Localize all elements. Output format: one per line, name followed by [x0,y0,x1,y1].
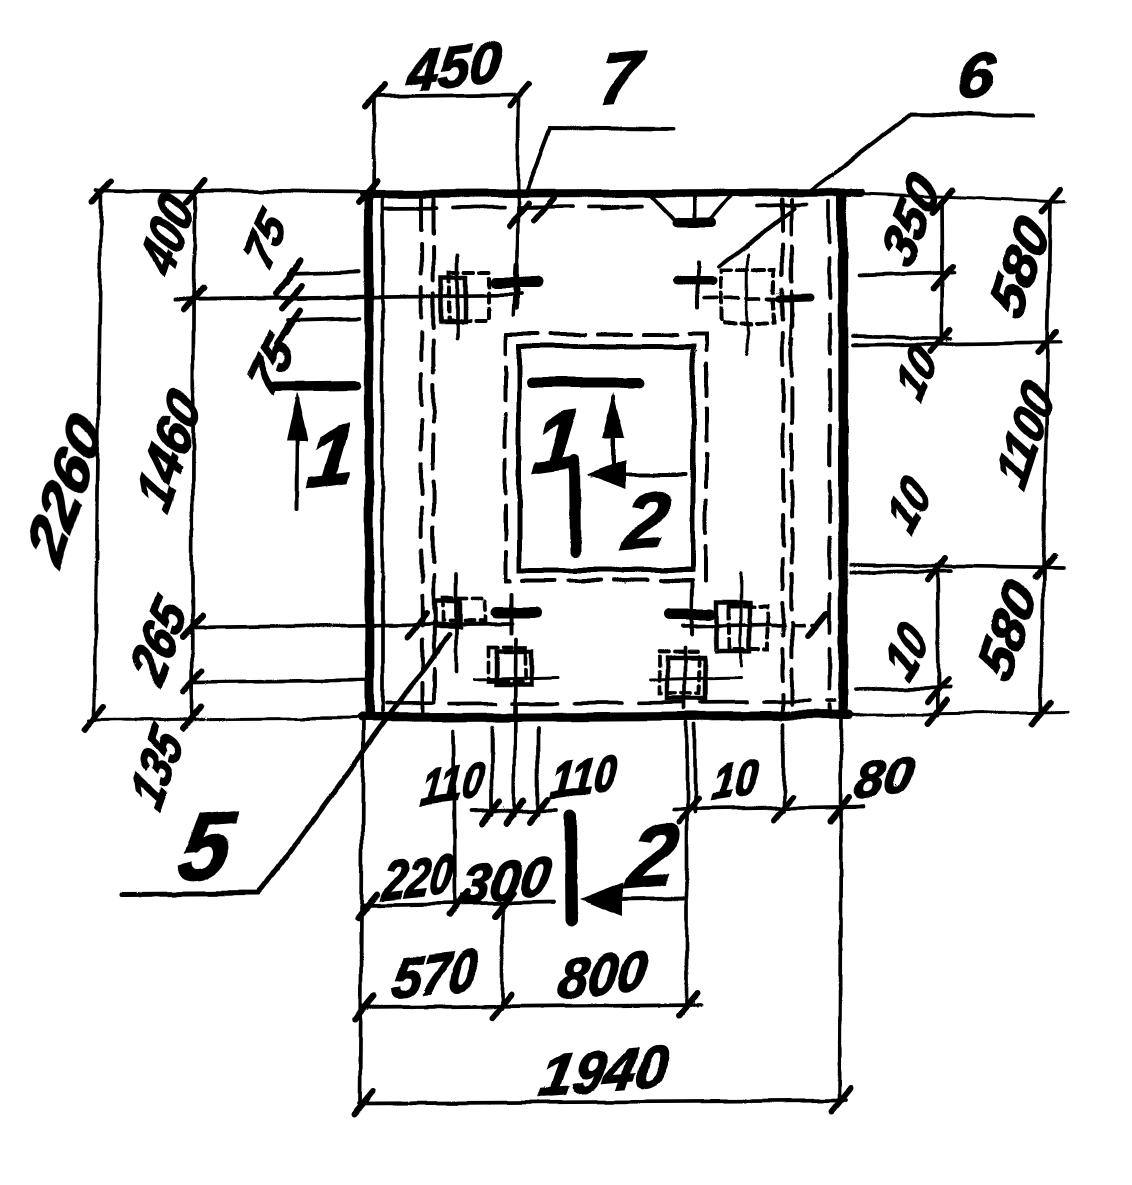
svg-text:1100: 1100 [985,372,1062,496]
svg-text:1460: 1460 [125,378,212,520]
svg-text:300: 300 [457,843,553,915]
svg-text:5: 5 [172,790,242,900]
svg-text:110: 110 [548,742,617,808]
svg-text:2: 2 [618,803,683,906]
svg-text:1: 1 [302,404,358,506]
svg-text:110: 110 [418,750,485,816]
svg-text:6: 6 [951,37,999,113]
svg-text:580: 580 [967,568,1047,689]
svg-text:10: 10 [877,465,939,541]
svg-text:10: 10 [708,747,760,811]
svg-text:1940: 1940 [536,1032,672,1108]
svg-text:75: 75 [239,322,302,403]
svg-text:80: 80 [851,744,916,810]
svg-text:450: 450 [401,28,503,103]
svg-text:75: 75 [233,197,296,278]
svg-text:800: 800 [554,938,651,1011]
svg-text:135: 135 [118,714,191,817]
svg-text:10: 10 [875,612,937,688]
svg-text:220: 220 [377,841,456,911]
svg-text:7: 7 [593,34,649,119]
svg-text:265: 265 [120,585,196,694]
svg-text:350: 350 [870,160,948,275]
svg-text:570: 570 [388,938,481,1010]
svg-text:2260: 2260 [14,401,113,574]
